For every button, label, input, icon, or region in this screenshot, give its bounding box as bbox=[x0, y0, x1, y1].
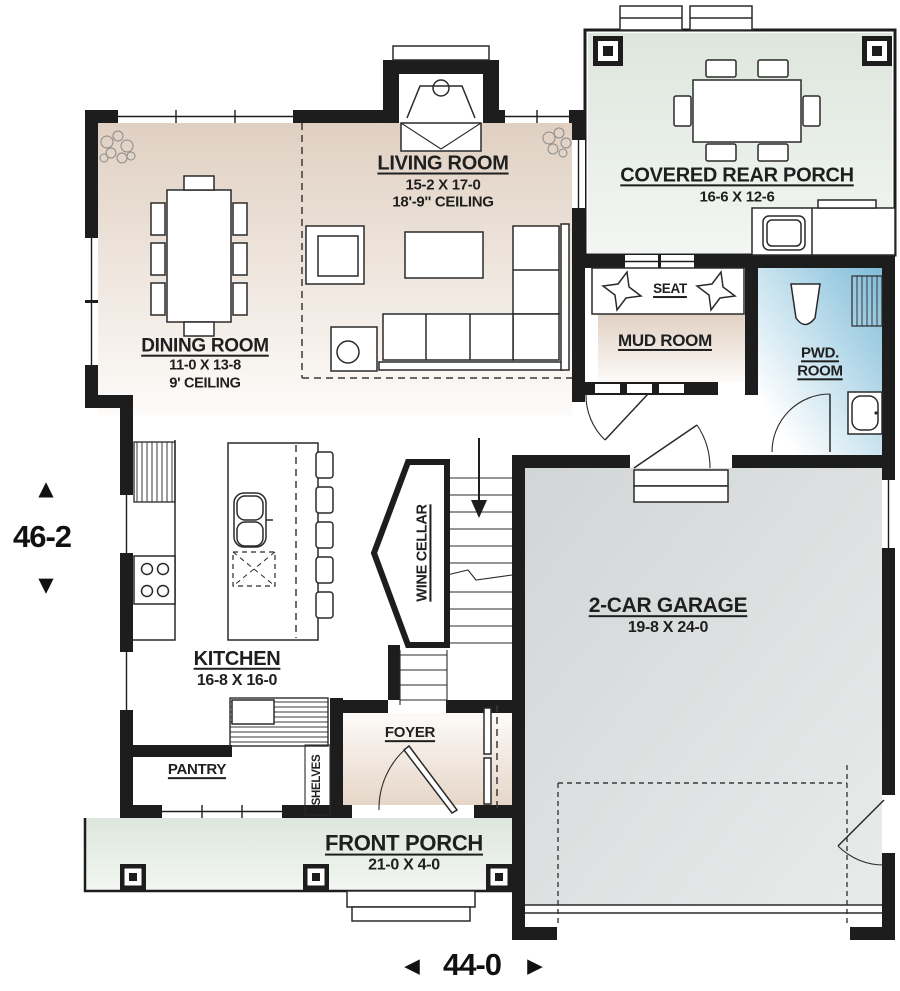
foyer-label: FOYER bbox=[385, 724, 435, 742]
dimension-height: 46-2 bbox=[13, 519, 71, 555]
living-room-name: LIVING ROOM bbox=[377, 153, 508, 177]
dining-room-ceiling: 9' CEILING bbox=[141, 375, 269, 392]
shelves-label: SHELVES bbox=[311, 755, 325, 806]
living-room-size: 15-2 X 17-0 bbox=[377, 176, 508, 194]
living-room-ceiling: 18'-9'' CEILING bbox=[377, 194, 508, 212]
kitchen-label: KITCHEN 16-8 X 16-0 bbox=[194, 648, 281, 690]
front-porch-size: 21-0 X 4-0 bbox=[325, 857, 483, 876]
front-steps bbox=[347, 891, 475, 921]
dimension-arrow-right: ► bbox=[522, 951, 548, 982]
living-room-label: LIVING ROOM 15-2 X 17-0 18'-9'' CEILING bbox=[377, 153, 508, 212]
kitchen-name: KITCHEN bbox=[194, 648, 281, 672]
dimension-width: 44-0 bbox=[443, 947, 501, 983]
dimension-arrow-up: ▲ bbox=[33, 474, 59, 505]
pwd-room-line1: PWD. bbox=[797, 344, 842, 362]
pantry-label: PANTRY bbox=[168, 761, 226, 779]
garage-name: 2-CAR GARAGE bbox=[589, 594, 748, 619]
front-porch-label: FRONT PORCH 21-0 X 4-0 bbox=[325, 831, 483, 876]
garage-size: 19-8 X 24-0 bbox=[589, 619, 748, 638]
wine-cellar-shape bbox=[374, 462, 447, 645]
rear-porch-name: COVERED REAR PORCH bbox=[620, 164, 854, 188]
garage-label: 2-CAR GARAGE 19-8 X 24-0 bbox=[589, 594, 748, 638]
mud-room-label: MUD ROOM bbox=[618, 331, 712, 351]
dimension-arrow-down: ▼ bbox=[33, 570, 59, 601]
pwd-room-line2: ROOM bbox=[797, 362, 842, 380]
dining-room-name: DINING ROOM bbox=[141, 336, 269, 358]
kitchen-fixtures bbox=[133, 440, 333, 640]
pwd-room-label: PWD. ROOM bbox=[797, 344, 842, 379]
kitchen-size: 16-8 X 16-0 bbox=[194, 671, 281, 690]
dining-room-label: DINING ROOM 11-0 X 13-8 9' CEILING bbox=[141, 336, 269, 393]
dining-room-size: 11-0 X 13-8 bbox=[141, 358, 269, 375]
rear-porch-label: COVERED REAR PORCH 16-6 X 12-6 bbox=[620, 164, 854, 205]
dimension-arrow-left: ◄ bbox=[399, 951, 425, 982]
wine-cellar-label: WINE CELLAR bbox=[414, 504, 431, 601]
seat-label: SEAT bbox=[653, 281, 687, 297]
rear-porch-size: 16-6 X 12-6 bbox=[620, 188, 854, 206]
floor-plan: .w{fill:#1d1d1d;} .fw{fill:#ffffff;strok… bbox=[0, 0, 900, 991]
front-porch-name: FRONT PORCH bbox=[325, 831, 483, 857]
